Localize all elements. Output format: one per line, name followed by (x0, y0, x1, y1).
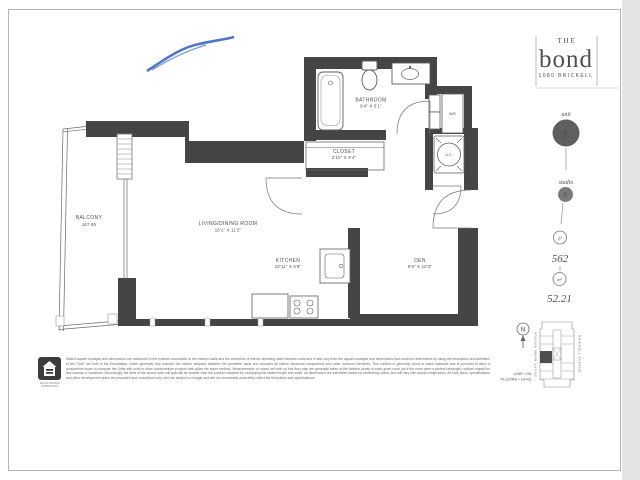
kitchen-sink (320, 249, 350, 283)
stove (290, 296, 318, 318)
wall-segment (304, 130, 386, 140)
type-value: S (564, 191, 568, 199)
balcony-label: BALCONY (76, 215, 103, 221)
type-label: studio (559, 180, 574, 186)
railing-cap (56, 316, 64, 326)
sqft-value: 562 (552, 253, 569, 265)
bathtub (318, 72, 343, 130)
keyplan-line: LINE • 05 (514, 371, 532, 376)
scanned-page: BATHROOM 9'4" X 5'1" CLOSET 2'10" X 9'4"… (0, 0, 640, 480)
house-body-icon (44, 367, 55, 376)
den-dims: 9'8" X 10'3" (408, 264, 433, 269)
equal-housing-caption: EQUAL HOUSING OPPORTUNITY (33, 382, 67, 388)
balcony-slider (117, 134, 132, 179)
wall-segment (458, 228, 478, 318)
railing-cap (108, 314, 117, 324)
living-room-label: LIVING/DINING ROOM (199, 221, 258, 227)
mullion (150, 318, 155, 326)
wall-segment (134, 319, 350, 326)
oven-cabinet (252, 294, 288, 318)
unit-label: unit (561, 112, 571, 118)
bathroom-dims: 9'4" X 5'1" (360, 104, 382, 109)
equals-bar (46, 369, 53, 371)
equal-housing-line2: OPPORTUNITY (41, 385, 58, 388)
living-room-dims: 10'1" X 11'2" (215, 228, 242, 233)
mullion (205, 318, 210, 326)
sqm-value: 52.21 (547, 293, 572, 305)
toilet (362, 61, 377, 90)
wall-pillar (118, 278, 136, 326)
wall-segment (350, 314, 478, 326)
sqft-unit: ft² (558, 236, 563, 241)
disclaimer-text: Stated square footages and dimensions ar… (66, 357, 490, 381)
balcony-dims: 167.85 (82, 222, 97, 227)
wall-segment (425, 128, 433, 190)
brand-address: 1080 BRICKELL (539, 73, 594, 79)
north-label: N (521, 327, 526, 334)
vanity-sink (392, 63, 430, 84)
equals-bar (46, 372, 53, 374)
ac-label: A.C. (446, 153, 453, 157)
wall-segment (464, 136, 478, 190)
wall-segment (306, 168, 368, 177)
brand-the: THE (557, 37, 577, 45)
keyplan-floors: FLOORS • 14-43 (501, 377, 532, 382)
washer-dryer (429, 94, 463, 133)
street-right-label: BRICKELL AVENUE (578, 335, 582, 373)
unit-value: F (563, 127, 570, 141)
street-left-label: SOUTH MIAMI AVENUE (534, 331, 538, 376)
equal-housing-logo (38, 357, 61, 380)
closet-dims: 2'10" X 9'4" (332, 155, 357, 160)
wd-label: W/D (449, 112, 456, 116)
kitchen-dims: 10'11" X 6'8" (275, 264, 302, 269)
brand-name: bond (539, 46, 593, 73)
sqm-unit: m² (557, 277, 562, 282)
floorplan-drawing: BATHROOM 9'4" X 5'1" CLOSET 2'10" X 9'4"… (0, 0, 640, 480)
keyplan-highlighted-unit (540, 351, 552, 363)
scan-edge-right (622, 0, 640, 480)
mullion (258, 318, 263, 326)
